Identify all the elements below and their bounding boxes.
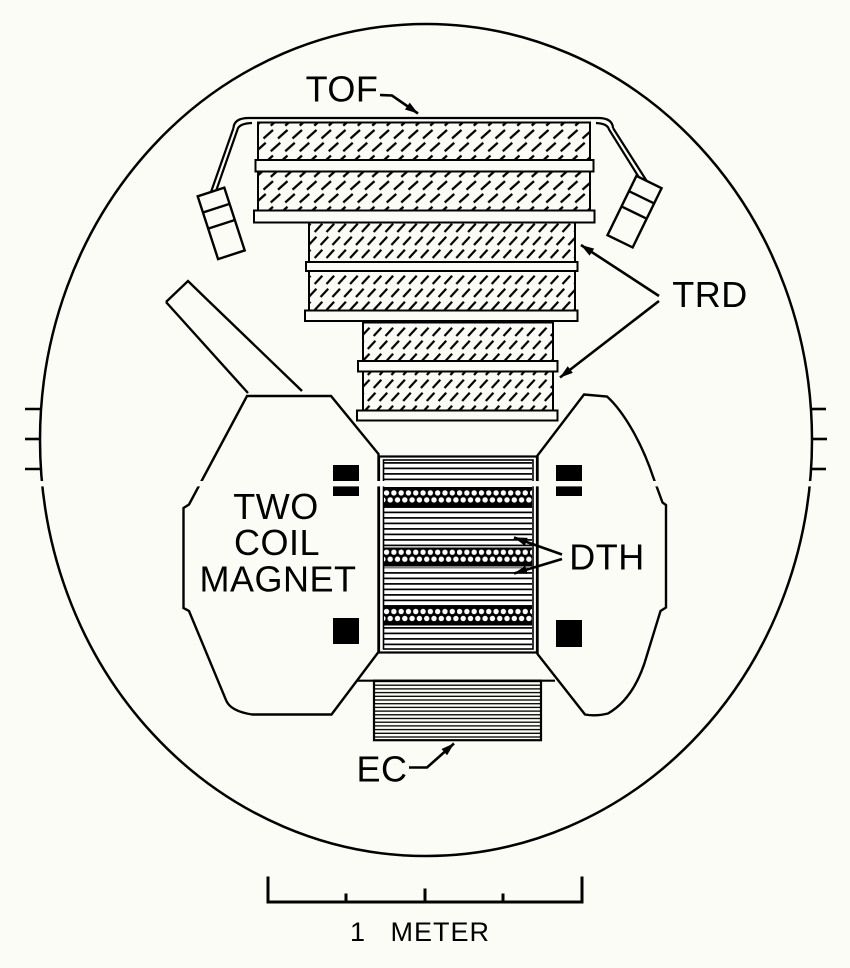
tof-bar-2 [258, 172, 590, 211]
coil-marker-top-right [556, 465, 582, 496]
figure-canvas: TOF TRD DTH EC TWO COIL MAGNET 1 METER [0, 0, 850, 968]
ec-block-fill [374, 681, 541, 741]
dth-tube-band-3 [384, 606, 532, 626]
trd-leader-upper [581, 245, 659, 296]
tof-bar-1 [258, 123, 590, 161]
light-guide-right [596, 123, 648, 186]
trd-bar-4 [363, 372, 553, 411]
ec-calorimeter [357, 681, 555, 741]
light-guide-left [211, 123, 252, 194]
scale-bar-label: 1 METER [350, 917, 490, 947]
trd-plate-1 [305, 311, 578, 322]
magnet-label-line3: MAGNET [199, 559, 356, 600]
trd-separator-2 [358, 361, 558, 372]
dth-lines-2 [384, 509, 532, 548]
trd-bar-1 [309, 223, 575, 263]
support-strut [166, 281, 302, 393]
scale-bar-line [268, 877, 582, 903]
trd-bar-3 [363, 323, 553, 362]
coil-marker-bottom-left [333, 618, 359, 644]
tof-label: TOF [306, 69, 379, 110]
ec-leader [409, 744, 454, 768]
coil-marker-top-left [333, 465, 359, 496]
trd-label: TRD [672, 274, 748, 315]
pmt-right [607, 176, 661, 248]
magnet-label-line2: COIL [234, 522, 320, 563]
dth-tube-band-1 [384, 487, 532, 508]
scale-bar: 1 METER [268, 877, 582, 948]
dth-tube-band-2 [384, 548, 532, 567]
tof-leader [380, 95, 418, 114]
trd-plate-2 [357, 411, 558, 421]
tof-bottom-plate [254, 211, 595, 223]
figure-seam [0, 481, 850, 486]
dth-label: DTH [569, 537, 645, 578]
coil-marker-bottom-right [556, 620, 582, 647]
pmt-left [198, 188, 245, 259]
dth-lines-3 [384, 568, 532, 606]
tof-separator [256, 160, 594, 172]
detector-diagram: TOF TRD DTH EC TWO COIL MAGNET 1 METER [0, 0, 850, 968]
magnet-label-line1: TWO [233, 486, 318, 527]
trd-bar-2 [309, 271, 575, 311]
tof-trd-stack [254, 123, 595, 421]
dth-lines-4 [384, 627, 532, 649]
trd-separator-1 [306, 262, 578, 271]
ec-label: EC [356, 749, 407, 790]
